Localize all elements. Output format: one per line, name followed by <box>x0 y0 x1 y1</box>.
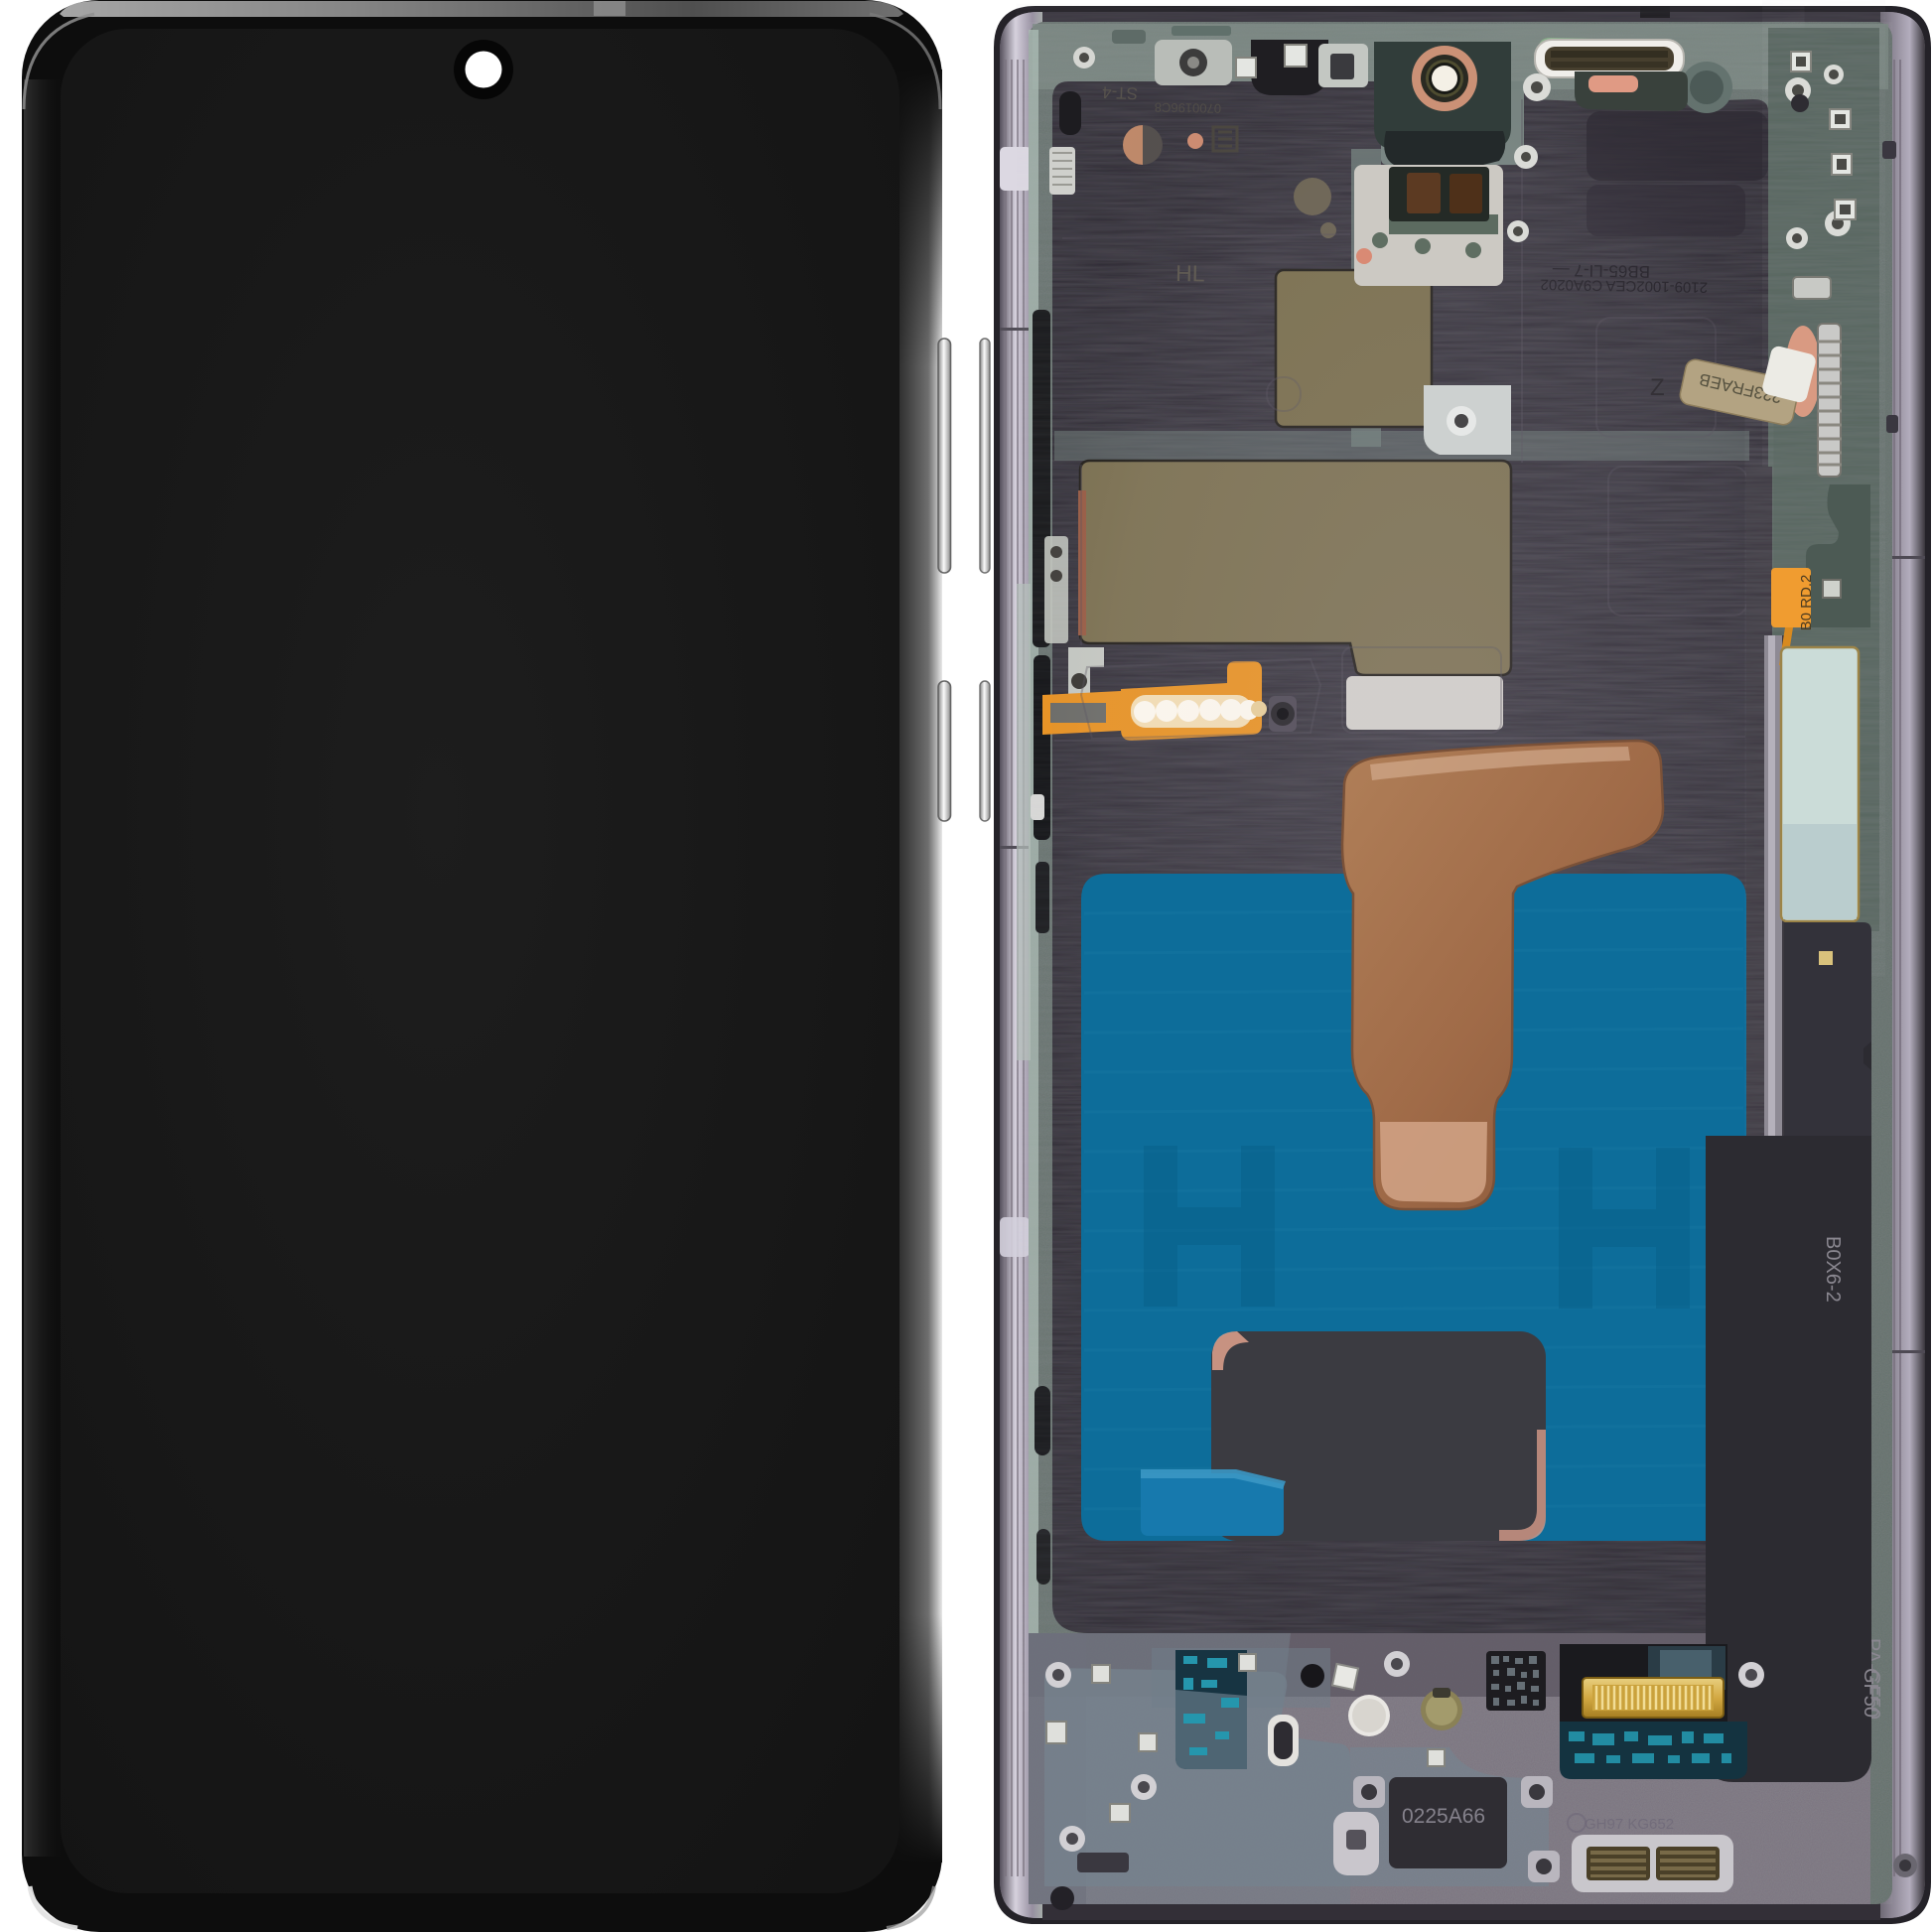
svg-text:GH97 KG652: GH97 KG652 <box>1585 1816 1674 1833</box>
svg-text:0225A66: 0225A66 <box>1402 1805 1485 1828</box>
svg-text:GF50: GF50 <box>1860 1668 1881 1718</box>
svg-text:B0 RD.2: B0 RD.2 <box>1798 575 1815 631</box>
svg-text:B0X6-2: B0X6-2 <box>1822 1236 1844 1303</box>
